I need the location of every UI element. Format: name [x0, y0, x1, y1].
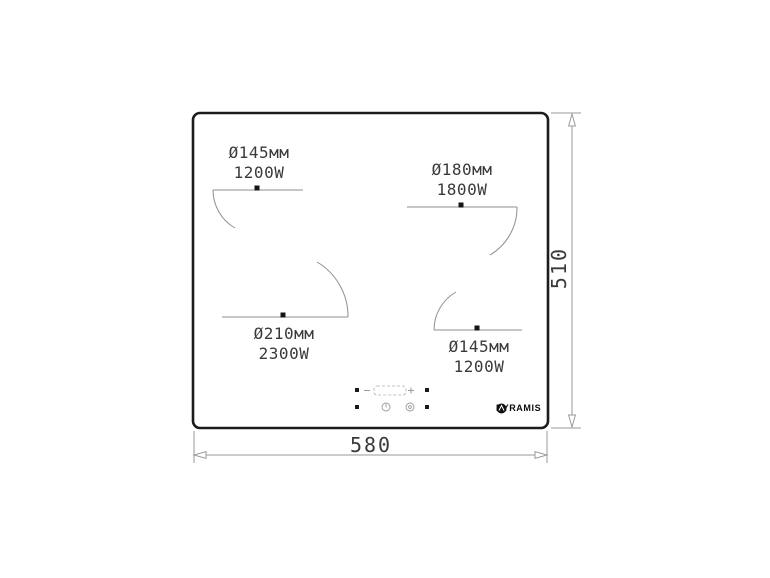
touch-point	[425, 388, 429, 392]
pyramis-logo-icon	[496, 403, 507, 414]
zone-power-label: 1200W	[229, 163, 290, 183]
zone-diameter-label: Ø145мм	[449, 337, 510, 357]
width-dimension-value: 580	[350, 433, 392, 457]
hob-dimension-drawing: Ø145мм 1200W Ø180мм 1800W Ø210мм 2300W Ø…	[0, 0, 770, 578]
arrowhead-bottom-icon	[569, 415, 576, 427]
zone-topleft-label: Ø145мм 1200W	[229, 143, 290, 183]
zone-power-label: 1800W	[432, 180, 493, 200]
touch-point	[355, 388, 359, 392]
zone-diameter-label: Ø210мм	[254, 324, 315, 344]
touch-point	[355, 405, 359, 409]
height-dimension-value: 510	[547, 247, 571, 289]
arrowhead-top-icon	[569, 114, 576, 126]
zone-power-label: 2300W	[254, 344, 315, 364]
zone-center-dot	[281, 313, 286, 318]
zone-diameter-label: Ø180мм	[432, 160, 493, 180]
arrowhead-left-icon	[194, 452, 206, 459]
touch-point	[425, 405, 429, 409]
arrowhead-right-icon	[535, 452, 547, 459]
brand-logo: PYRAMIS	[496, 403, 541, 413]
zone-center-dot	[475, 326, 480, 331]
zone-diameter-label: Ø145мм	[229, 143, 290, 163]
zone-bottomright-label: Ø145мм 1200W	[449, 337, 510, 377]
zone-center-dot	[459, 203, 464, 208]
zone-power-label: 1200W	[449, 357, 510, 377]
drawing-geometry	[0, 0, 770, 578]
zone-topright-label: Ø180мм 1800W	[432, 160, 493, 200]
zone-center-dot	[255, 186, 260, 191]
zone-bottomleft-label: Ø210мм 2300W	[254, 324, 315, 364]
